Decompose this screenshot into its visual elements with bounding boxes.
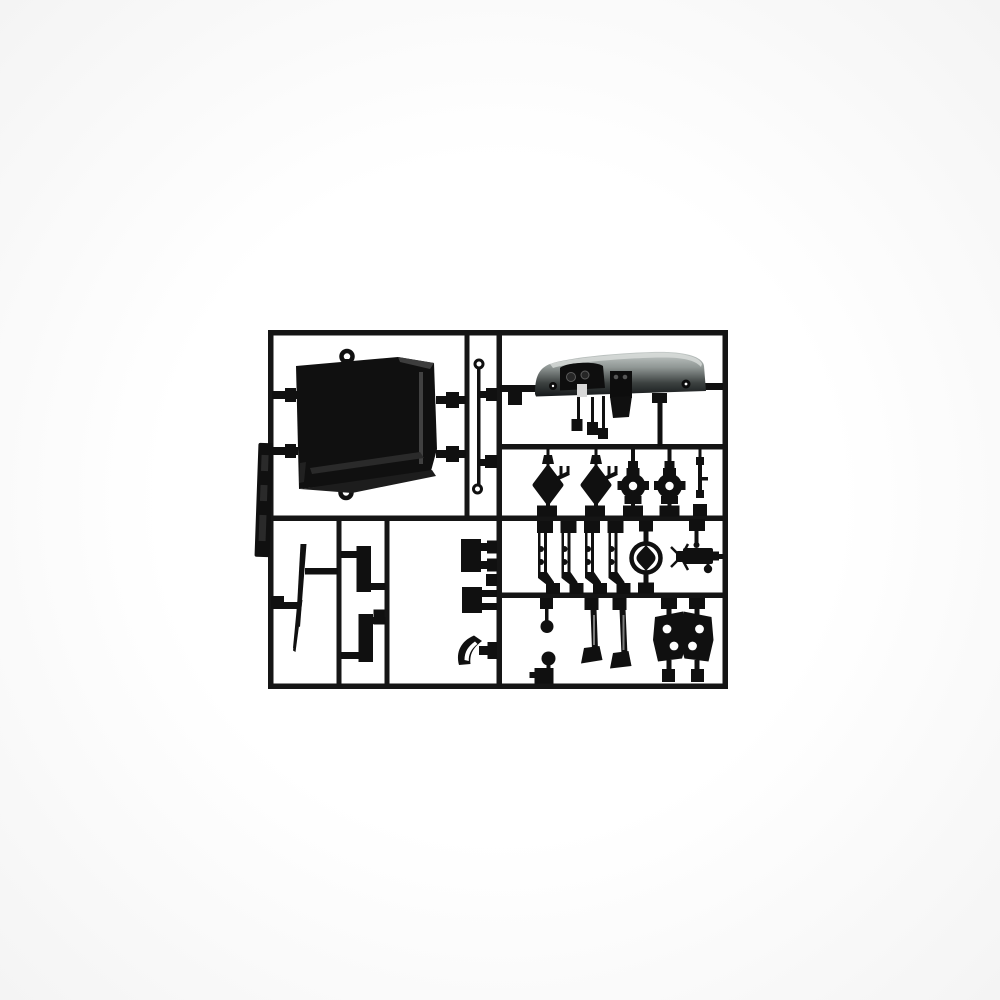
dashboard	[500, 352, 723, 446]
flat-plate-a	[341, 546, 386, 592]
dashboard-hanging-pedals	[572, 396, 609, 439]
pedal-a	[581, 598, 603, 664]
wiper-blades	[271, 544, 338, 652]
diamond-bracket-a	[535, 450, 570, 517]
lever-2	[561, 521, 584, 594]
pin-part	[693, 450, 708, 517]
block-b	[462, 587, 497, 613]
hub-wheel-b	[654, 450, 686, 517]
divider-rail-v4	[385, 518, 390, 688]
sprue-photo	[0, 0, 1000, 1000]
ball-knob-block	[530, 652, 556, 684]
hub-wheel-a	[618, 450, 650, 517]
divider-rail-v3	[337, 518, 342, 688]
small-square	[486, 574, 497, 586]
floor-panel	[272, 351, 466, 498]
lever-1	[537, 521, 560, 594]
flat-plate-b	[341, 610, 386, 663]
shift-ball-lever	[540, 598, 554, 633]
steering-wheel	[632, 521, 661, 594]
photo-background	[0, 0, 1000, 1000]
divider-rail-h1	[499, 444, 728, 450]
pedal-b	[610, 598, 632, 669]
center-console	[610, 371, 632, 398]
divider-rail-v1	[465, 330, 470, 521]
air-scoop	[458, 636, 497, 666]
lever-4	[608, 521, 631, 594]
block-a	[461, 539, 497, 572]
divider-rail-v2	[497, 330, 503, 689]
diamond-bracket-b	[583, 450, 618, 517]
divider-rail-h3	[499, 593, 728, 599]
hooked-rod	[474, 360, 498, 493]
dashboard-runner	[652, 393, 667, 446]
steering-column	[671, 519, 724, 573]
lever-3	[584, 521, 607, 594]
holed-bracket-right	[679, 598, 714, 682]
